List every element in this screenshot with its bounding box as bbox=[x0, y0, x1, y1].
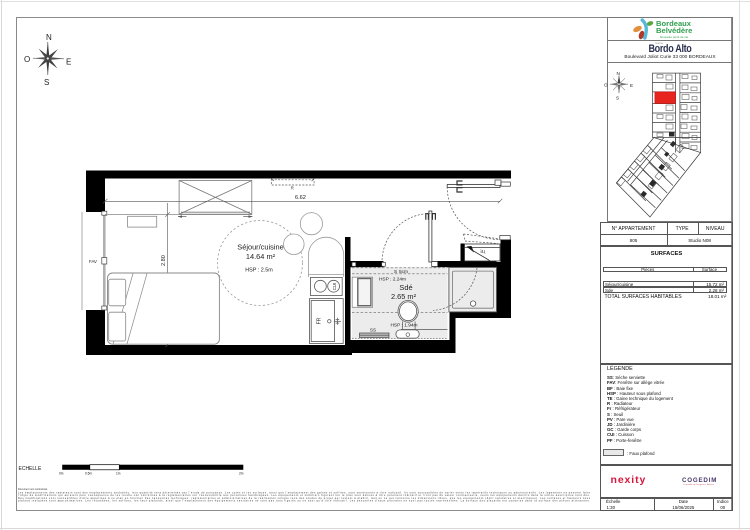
svg-text:0.5m: 0.5m bbox=[85, 472, 92, 476]
svg-text:ECHELLE: ECHELLE bbox=[19, 466, 42, 472]
svg-text:0m: 0m bbox=[59, 472, 64, 476]
svg-text:E: E bbox=[630, 83, 633, 88]
svg-text:Document non contractuel.: Document non contractuel. bbox=[18, 488, 48, 491]
svg-text:1m: 1m bbox=[116, 472, 121, 476]
svg-text:N: N bbox=[617, 71, 620, 76]
svg-text:S: S bbox=[616, 96, 619, 101]
svg-text:2m: 2m bbox=[239, 472, 244, 476]
svg-text:O: O bbox=[604, 83, 608, 88]
svg-text:plafond indiquées sont approxi: plafond indiquées sont approximatives. L… bbox=[18, 499, 590, 502]
